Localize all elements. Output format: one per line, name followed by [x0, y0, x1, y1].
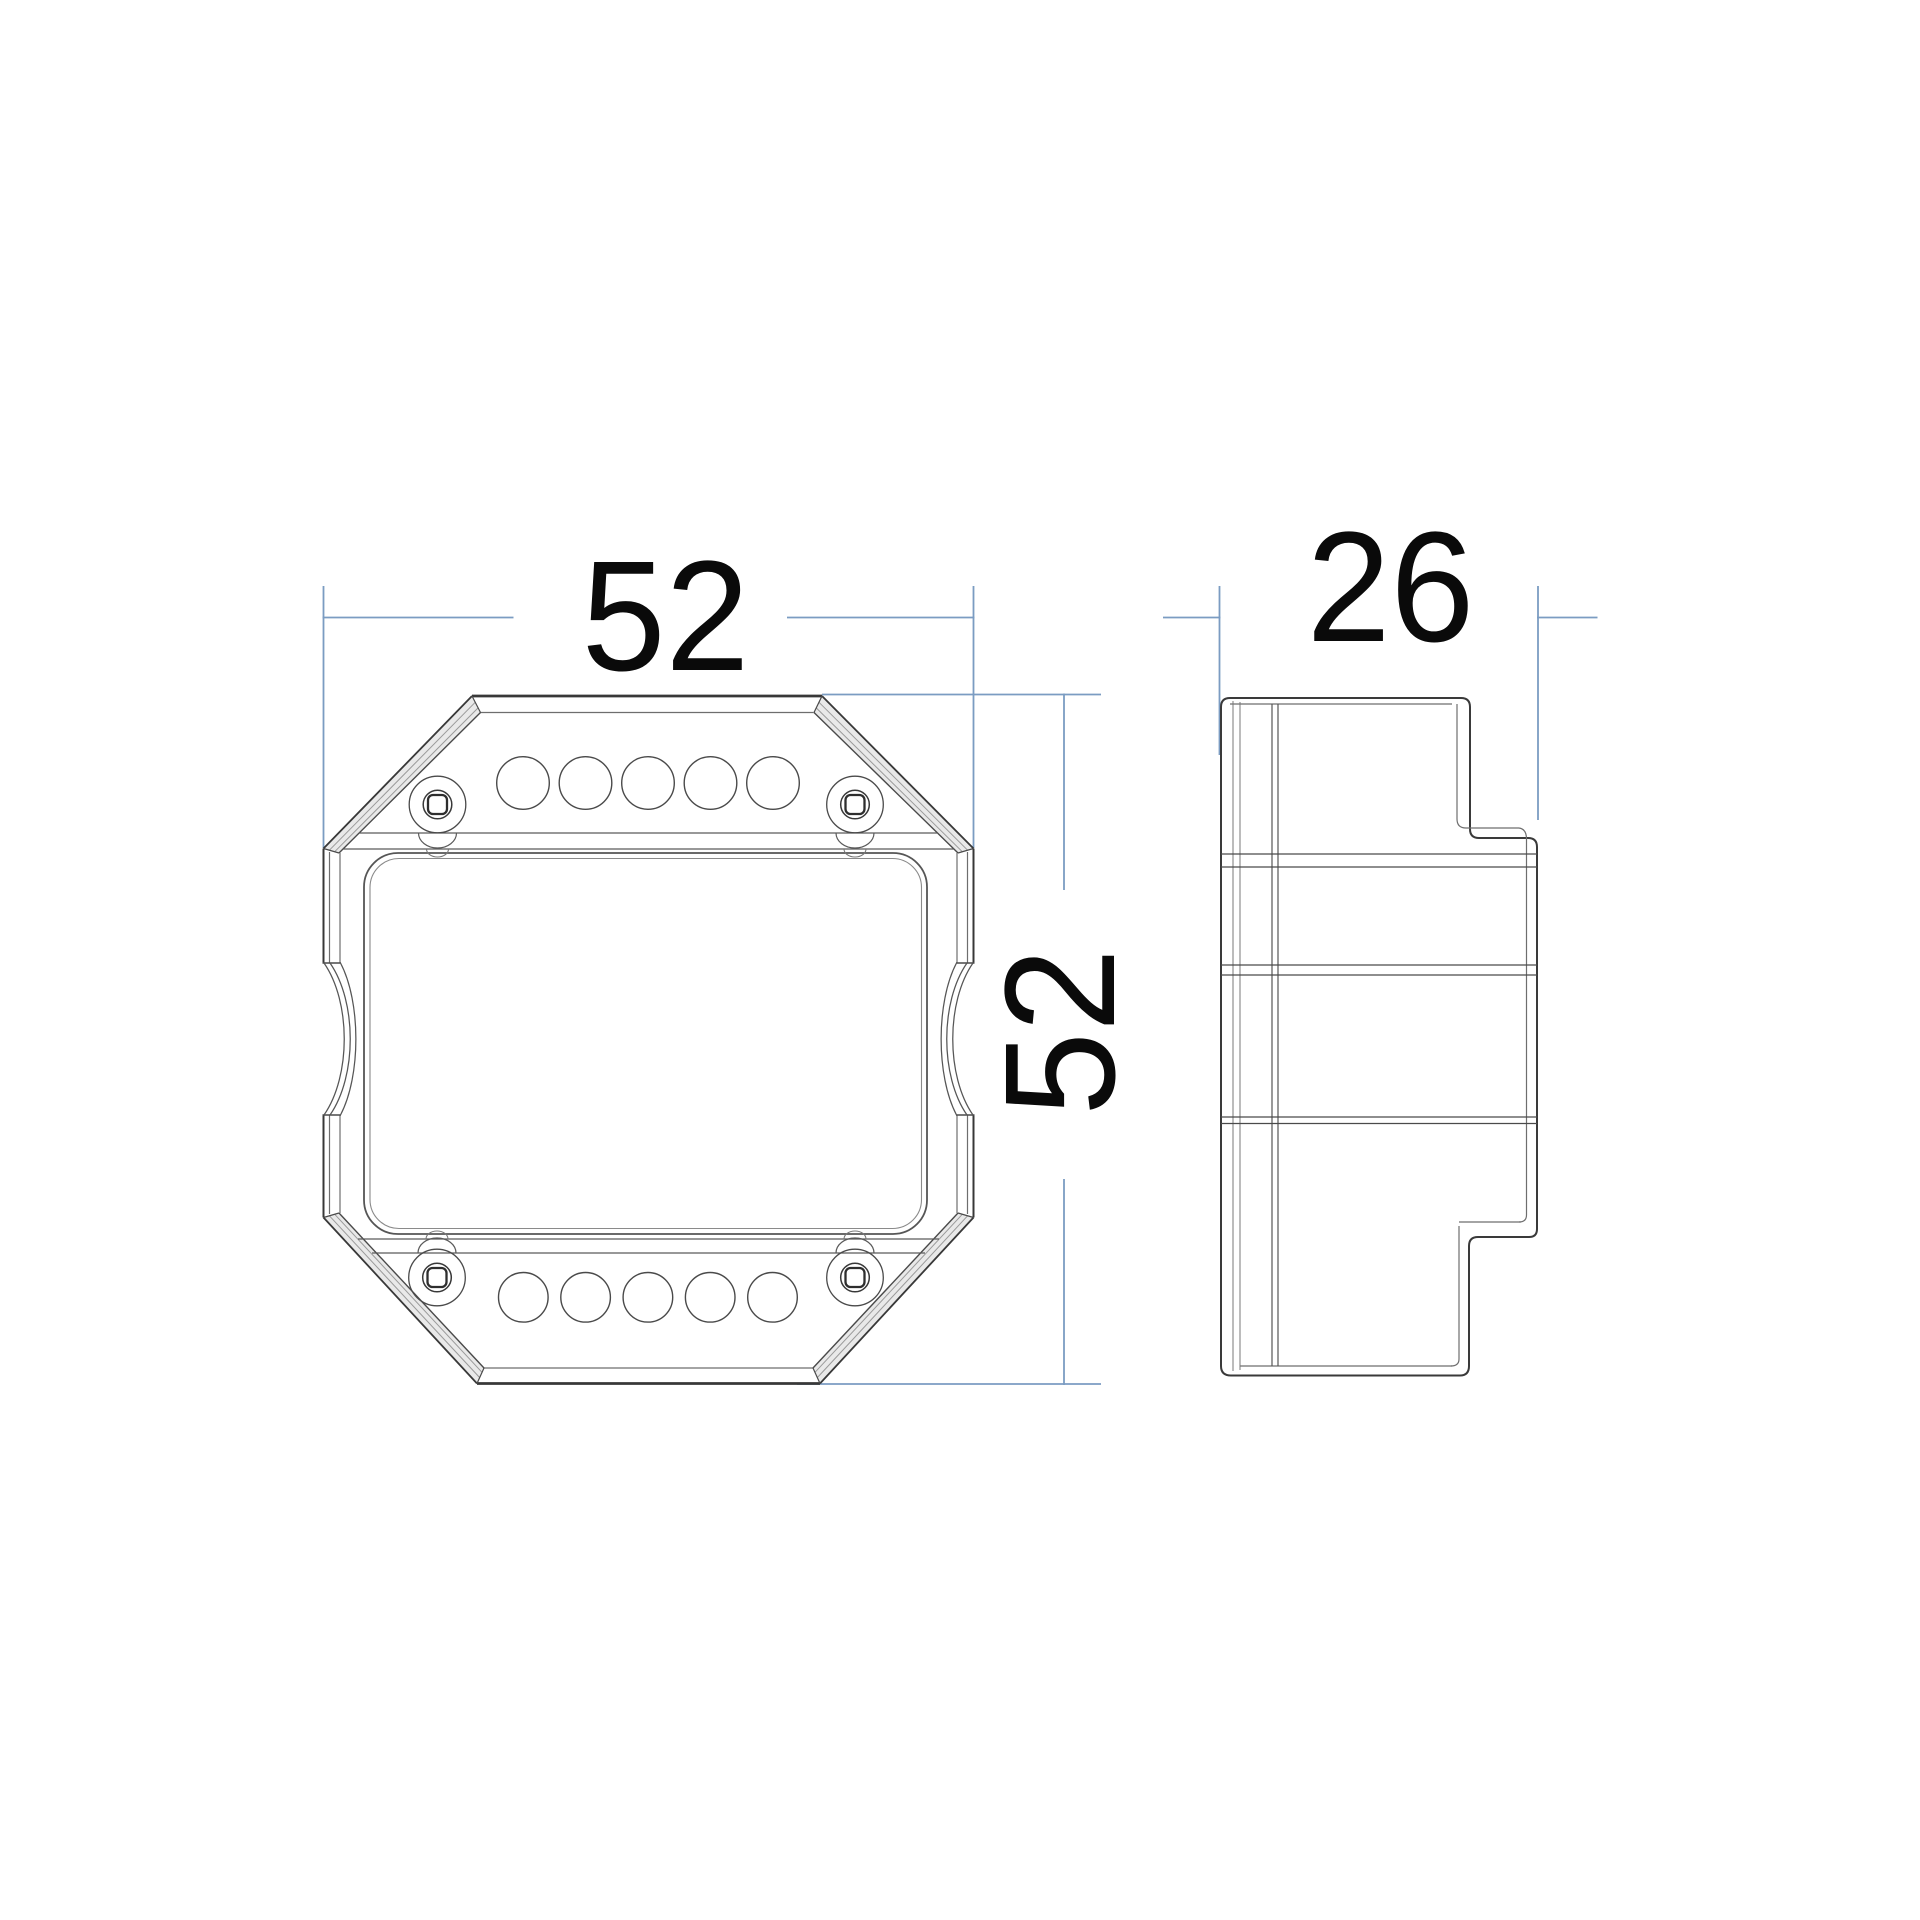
- svg-text:52: 52: [972, 948, 1147, 1116]
- svg-text:52: 52: [582, 528, 750, 703]
- svg-text:26: 26: [1307, 499, 1475, 674]
